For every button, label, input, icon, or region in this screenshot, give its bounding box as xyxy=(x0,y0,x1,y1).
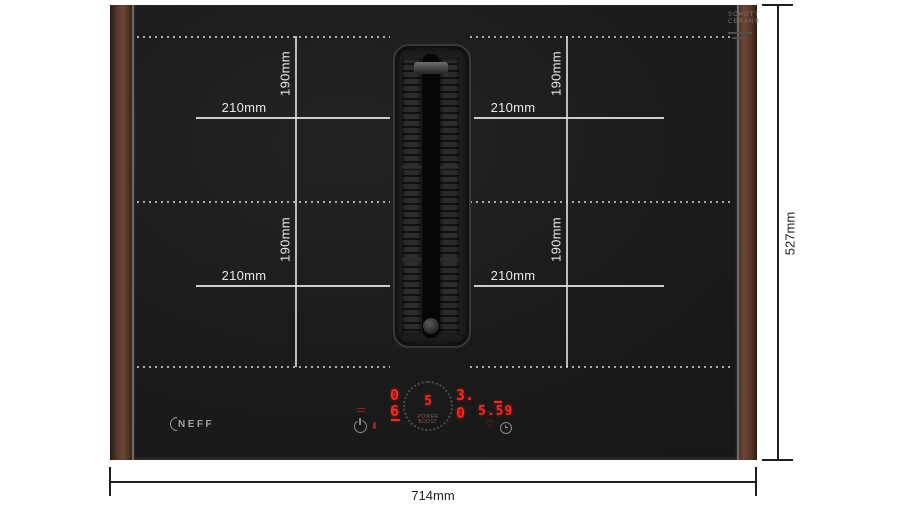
zone-width-measure-line xyxy=(196,285,390,287)
zone-width-measure-line xyxy=(474,117,664,119)
height-dimension-tick-top xyxy=(762,4,793,6)
right-zone-bottom-display: 0 xyxy=(456,404,465,422)
countertop-wood-left xyxy=(110,5,132,460)
zone-height-measure-line xyxy=(295,36,297,367)
vent-air-inlet xyxy=(422,54,440,338)
glass-print-line2: CERAN® xyxy=(728,19,760,26)
product-dimension-diagram: SCHOTT CERAN® NEFF 190mm 190mm xyxy=(0,0,900,506)
power-boost-label-2: BOOST xyxy=(405,420,451,425)
zone-width-measure-line xyxy=(474,285,664,287)
timer-overbar xyxy=(494,401,502,403)
zone-width-measure-line xyxy=(196,117,390,119)
power-icon xyxy=(354,420,367,433)
zone-boundary-dashed xyxy=(137,366,390,368)
overall-height-label: 527mm xyxy=(783,209,798,259)
height-dimension-tick-bottom xyxy=(762,459,793,461)
induction-hob: SCHOTT CERAN® NEFF 190mm 190mm xyxy=(110,5,757,460)
width-dimension-tick-left xyxy=(109,467,111,496)
indicator-light xyxy=(373,422,376,429)
vent-grille-right xyxy=(440,58,459,334)
vent-handle xyxy=(414,62,448,74)
zone-height-label: 190mm xyxy=(549,215,564,265)
clock-icon xyxy=(500,422,512,434)
vent-grille-left xyxy=(402,58,421,334)
height-dimension-line xyxy=(777,5,779,461)
fine-print-line xyxy=(728,32,752,34)
zone-boundary-dashed xyxy=(137,201,390,203)
selection-underbar xyxy=(391,419,400,421)
twistpad-dial: 5 POWER BOOST xyxy=(403,381,453,431)
glass-print-line1: SCHOTT xyxy=(728,12,760,19)
overall-width-label: 714mm xyxy=(403,488,463,503)
schott-ceran-print: SCHOTT CERAN® xyxy=(728,12,760,39)
downdraft-vent-module xyxy=(393,44,471,348)
zone-height-label: 190mm xyxy=(278,49,293,99)
width-dimension-tick-right xyxy=(755,467,757,496)
width-dimension-line xyxy=(110,481,756,483)
vent-filter-knob xyxy=(423,318,439,334)
zone-boundary-dashed xyxy=(470,201,732,203)
fine-print-line xyxy=(732,37,748,39)
zone-width-label: 210mm xyxy=(214,100,274,115)
zone-boundary-dashed xyxy=(470,366,732,368)
vent-indicator xyxy=(357,406,365,413)
dial-level-display: 5 xyxy=(405,394,451,409)
right-zone-top-display: 3. xyxy=(456,386,474,404)
timer-display: 5.59 xyxy=(478,404,513,419)
zone-height-measure-line xyxy=(566,36,568,367)
zone-width-label: 210mm xyxy=(214,268,274,283)
left-zone-bottom-display: 6 xyxy=(390,402,399,420)
zone-height-label: 190mm xyxy=(278,215,293,265)
zone-boundary-dashed xyxy=(137,36,390,38)
zone-width-label: 210mm xyxy=(483,100,543,115)
control-panel: 0 6 5 POWER BOOST 3. 0 5.59 ♡ xyxy=(348,378,518,440)
zone-boundary-dashed xyxy=(470,36,732,38)
zone-width-label: 210mm xyxy=(483,268,543,283)
neff-arc-icon xyxy=(167,414,187,434)
zone-height-label: 190mm xyxy=(549,49,564,99)
brand-logo: NEFF xyxy=(170,417,214,431)
favorite-icon: ♡ xyxy=(485,420,494,430)
